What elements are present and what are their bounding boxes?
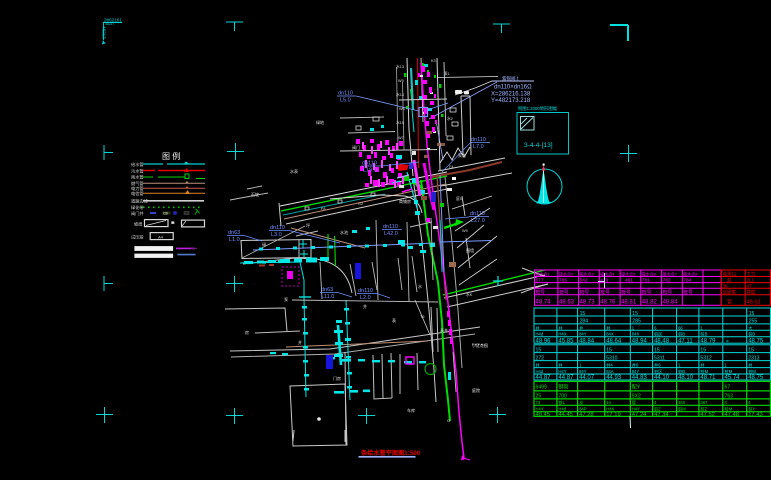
svg-text:桩区: 桩区: [654, 331, 662, 338]
svg-text:L3.0: L3.0: [271, 232, 282, 238]
svg-text:桩号: 桩号: [559, 289, 569, 296]
svg-text:井4: 井4: [606, 361, 613, 368]
svg-text:L1.0: L1.0: [229, 237, 240, 243]
svg-text:桩号: 桩号: [536, 289, 546, 296]
svg-text:桩B: 桩B: [678, 331, 685, 338]
svg-text:水: 水: [418, 283, 422, 289]
svg-text:47.34: 47.34: [654, 412, 669, 418]
svg-text:配Y: 配Y: [632, 385, 641, 391]
svg-text:L11.0: L11.0: [321, 294, 334, 300]
svg-text:48.63: 48.63: [559, 299, 575, 305]
svg-text:桩B: 桩B: [700, 331, 707, 338]
svg-text:3-4-4-[13]: 3-4-4-[13]: [524, 142, 553, 149]
svg-text:5312: 5312: [700, 356, 711, 362]
svg-text:dn110: dn110: [362, 161, 377, 167]
svg-text:管: 管: [632, 399, 636, 406]
svg-text:47.24: 47.24: [632, 412, 647, 418]
svg-text:≡: ≡: [726, 338, 729, 343]
svg-text:48.10: 48.10: [678, 375, 694, 381]
svg-text:763: 763: [725, 393, 734, 399]
svg-text:765: 765: [559, 278, 567, 284]
svg-text:Y=482173.218: Y=482173.218: [491, 98, 531, 104]
svg-text:84X: 84X: [632, 332, 640, 337]
svg-text:泵房: 泵房: [458, 152, 466, 158]
svg-text:47.28: 47.28: [579, 412, 594, 418]
svg-text:17.19: 17.19: [606, 412, 621, 418]
svg-text:367: 367: [700, 400, 708, 405]
svg-text:73: 73: [536, 400, 541, 405]
svg-text:井6: 井6: [654, 361, 661, 368]
svg-text:2L1: 2L1: [747, 278, 755, 283]
svg-text:17.43: 17.43: [748, 412, 763, 418]
svg-text:铁L: 铁L: [558, 399, 565, 406]
svg-text:H4d: H4d: [536, 369, 544, 374]
svg-text:15: 15: [749, 311, 755, 317]
svg-text:48.74: 48.74: [536, 299, 552, 305]
svg-text:庭5: 庭5: [456, 196, 462, 201]
svg-text:461: 461: [625, 278, 633, 284]
svg-text:48.64: 48.64: [606, 338, 622, 344]
svg-text:阀: 阀: [262, 241, 266, 247]
svg-text:44.87: 44.87: [558, 375, 574, 381]
svg-text:房: 房: [245, 329, 249, 335]
svg-text:小区花园: 小区花园: [472, 342, 488, 348]
svg-text:战绩家: 战绩家: [723, 289, 737, 296]
svg-text:542: 542: [580, 278, 588, 284]
svg-text:272: 272: [536, 356, 545, 362]
svg-text:48.75: 48.75: [748, 338, 764, 344]
svg-text:桩B: 桩B: [748, 331, 755, 338]
svg-text:水14: 水14: [396, 92, 404, 97]
svg-text:15: 15: [580, 311, 586, 317]
svg-text:CB: CB: [163, 212, 169, 216]
svg-text:84X: 84X: [606, 332, 614, 337]
svg-text:商铺房: 商铺房: [399, 198, 411, 204]
svg-text:桩M: 桩M: [678, 406, 686, 413]
svg-text:桩B: 桩B: [678, 368, 685, 375]
svg-text:782: 782: [663, 278, 671, 284]
svg-text:给水管: 给水管: [131, 161, 144, 168]
svg-text:管: 管: [727, 298, 732, 305]
svg-text:H4X: H4X: [606, 407, 614, 412]
svg-text:dn63: dn63: [228, 230, 240, 236]
svg-text:桩号: 桩号: [600, 289, 610, 296]
svg-text:784: 784: [683, 278, 691, 284]
svg-text:340: 340: [678, 400, 686, 405]
svg-text:14: 14: [606, 400, 611, 405]
svg-text:45.85: 45.85: [558, 338, 574, 344]
svg-text:W5: W5: [398, 79, 404, 83]
svg-text:井: 井: [700, 361, 704, 368]
svg-text:试压段: 试压段: [131, 234, 144, 241]
svg-text:表: 表: [392, 317, 396, 323]
svg-text:84P: 84P: [579, 407, 587, 412]
svg-text:接水点1: 接水点1: [536, 271, 551, 277]
svg-text:15: 15: [536, 348, 542, 354]
svg-text:接水点8: 接水点8: [683, 271, 698, 277]
svg-text:接水点5: 接水点5: [621, 271, 636, 277]
svg-text:284: 284: [580, 319, 589, 325]
svg-text:井: 井: [298, 339, 302, 345]
svg-text:2313: 2313: [748, 356, 759, 362]
svg-text:接水点4: 接水点4: [600, 271, 615, 277]
svg-text:X=286216.138: X=286216.138: [491, 92, 531, 98]
svg-text:285: 285: [632, 319, 641, 325]
svg-text:66: 66: [678, 325, 683, 330]
svg-text:丝: 丝: [579, 399, 583, 405]
svg-text:F8: F8: [321, 207, 325, 211]
svg-text:井: 井: [536, 361, 540, 368]
svg-text:48.62: 48.62: [747, 299, 761, 305]
svg-text:桩号: 桩号: [683, 289, 693, 296]
svg-text:dn110: dn110: [471, 137, 486, 143]
svg-text:36: 36: [723, 284, 729, 289]
svg-text:15: 15: [748, 348, 754, 354]
svg-text:W9: W9: [462, 229, 468, 233]
svg-text:H4Y: H4Y: [558, 369, 566, 374]
svg-text:石坡: 石坡: [251, 191, 259, 197]
svg-text:H4X: H4X: [558, 332, 566, 337]
svg-text:W6: W6: [399, 107, 405, 111]
svg-text:44.45: 44.45: [558, 412, 573, 418]
svg-text:dn110: dn110: [383, 224, 398, 230]
svg-text:L7.0: L7.0: [473, 144, 484, 150]
svg-text:水2: 水2: [447, 116, 453, 121]
svg-text:15: 15: [632, 311, 638, 317]
svg-text:577: 577: [536, 278, 544, 284]
svg-text:67: 67: [725, 385, 731, 391]
svg-text:48.75: 48.75: [748, 375, 764, 381]
svg-text:G: G: [447, 418, 450, 423]
svg-text:15: 15: [654, 348, 660, 354]
svg-text:水K: 水K: [466, 292, 473, 297]
svg-text:竣测12: 竣测12: [723, 271, 738, 278]
svg-text:桩区: 桩区: [654, 368, 662, 375]
svg-text:条给水管平面图1:500: 条给水管平面图1:500: [360, 449, 421, 457]
svg-text:围墙: 围墙: [466, 247, 474, 253]
svg-text:dn63: dn63: [321, 287, 333, 293]
svg-text:桩M: 桩M: [700, 368, 708, 375]
svg-text:桩号: 桩号: [621, 289, 631, 296]
svg-text:48.76: 48.76: [600, 299, 616, 305]
svg-text:表井: 表井: [440, 327, 448, 333]
svg-text:44.07: 44.07: [579, 375, 595, 381]
svg-text:H4Y: H4Y: [632, 407, 640, 412]
svg-text:5X2: 5X2: [632, 393, 641, 399]
svg-text:48.84: 48.84: [663, 299, 679, 305]
svg-text:庭院: 庭院: [472, 387, 480, 393]
svg-text:泵1: 泵1: [444, 71, 450, 76]
svg-text:附图1:2000地形图幅: 附图1:2000地形图幅: [518, 105, 558, 112]
svg-text:井: 井: [748, 361, 752, 368]
svg-text:接水点2: 接水点2: [559, 271, 574, 277]
svg-text:桩M: 桩M: [725, 368, 733, 375]
svg-text:A4: A4: [158, 234, 164, 239]
svg-text:L5.0: L5.0: [340, 98, 351, 104]
svg-text:接水点6: 接水点6: [642, 271, 657, 277]
svg-text:5311: 5311: [654, 356, 665, 362]
svg-text:48.79: 48.79: [700, 338, 716, 344]
svg-text:绿地: 绿地: [316, 119, 324, 125]
svg-text:水13: 水13: [396, 64, 404, 69]
svg-text:丁力: 丁力: [747, 271, 756, 278]
svg-text:水池: 水池: [340, 229, 348, 235]
svg-text:桩号: 桩号: [663, 289, 673, 296]
svg-text:泵: 泵: [284, 297, 288, 302]
svg-text:水表: 水表: [290, 168, 298, 174]
svg-text:48.45: 48.45: [536, 412, 551, 418]
svg-text:L19.0: L19.0: [363, 168, 377, 174]
svg-text:84Y: 84Y: [579, 369, 587, 374]
svg-text:48.48: 48.48: [654, 338, 670, 344]
svg-text:dn110×dn16Ω: dn110×dn16Ω: [494, 85, 532, 91]
svg-text:48213: 48213: [102, 26, 107, 39]
svg-text:井: 井: [558, 361, 562, 368]
svg-text:F4: F4: [449, 165, 453, 169]
svg-text:井: 井: [579, 324, 583, 331]
svg-text:钢管: 钢管: [558, 384, 568, 391]
svg-text:管底: 管底: [747, 289, 756, 296]
svg-text:L2.0: L2.0: [360, 295, 371, 301]
svg-text:绿化带: 绿化带: [131, 204, 144, 211]
svg-text:坪: 坪: [306, 222, 310, 228]
svg-text:44.83: 44.83: [632, 375, 648, 381]
svg-text:84Y: 84Y: [579, 332, 587, 337]
svg-text:84Y: 84Y: [632, 369, 640, 374]
svg-text:255: 255: [749, 319, 758, 325]
svg-text:47.11: 47.11: [678, 338, 693, 344]
svg-text:K3: K3: [431, 59, 436, 63]
svg-text:48.71: 48.71: [700, 375, 716, 381]
svg-text:大: 大: [748, 324, 752, 331]
svg-text:阀门井: 阀门井: [131, 210, 144, 217]
svg-text:44.10: 44.10: [654, 375, 670, 381]
svg-text:W7: W7: [398, 136, 404, 140]
svg-text:电信管: 电信管: [131, 190, 144, 197]
svg-text:雨水管: 雨水管: [131, 174, 144, 181]
svg-text:48.73: 48.73: [580, 299, 596, 305]
svg-text:井: 井: [363, 303, 367, 309]
svg-text:15: 15: [606, 348, 612, 354]
svg-text:水15: 水15: [396, 120, 404, 125]
svg-text:dn110: dn110: [358, 288, 373, 294]
svg-text:井: 井: [558, 324, 562, 331]
svg-text:dn110: dn110: [270, 225, 285, 231]
svg-text:5310: 5310: [606, 356, 617, 362]
svg-text:T6: T6: [420, 315, 424, 319]
svg-text:L27.0: L27.0: [471, 218, 485, 224]
svg-text:井6: 井6: [632, 361, 639, 368]
svg-text:dn110: dn110: [470, 211, 485, 217]
svg-text:阀门: 阀门: [352, 144, 360, 150]
svg-text:接水点3: 接水点3: [580, 271, 595, 277]
svg-text:G2: G2: [358, 202, 363, 206]
svg-text:封: 封: [727, 277, 732, 283]
svg-text:48.84: 48.84: [579, 338, 595, 344]
svg-text:6499: 6499: [536, 385, 547, 391]
svg-text:84A: 84A: [606, 369, 614, 374]
svg-text:45.74: 45.74: [725, 375, 741, 381]
svg-text:污水管: 污水管: [131, 168, 144, 175]
svg-text:15: 15: [700, 348, 706, 354]
svg-text:车库: 车库: [407, 407, 415, 413]
svg-text:48.81: 48.81: [621, 299, 637, 305]
svg-text:桩号: 桩号: [642, 289, 652, 296]
svg-text:井: 井: [606, 324, 610, 331]
svg-text:4T: 4T: [747, 284, 753, 289]
svg-text:接水点7: 接水点7: [663, 271, 678, 277]
svg-text:桩号: 桩号: [580, 289, 590, 296]
svg-text:48.96: 48.96: [536, 338, 552, 344]
svg-text:44.93: 44.93: [606, 375, 622, 381]
svg-text:25: 25: [536, 393, 542, 399]
svg-text:图 例: 图 例: [162, 151, 180, 161]
svg-text:坡度: 坡度: [134, 221, 143, 228]
svg-text:781: 781: [642, 278, 650, 284]
svg-text:H4Y: H4Y: [536, 407, 544, 412]
svg-text:H4d: H4d: [558, 407, 566, 412]
svg-text:44.87: 44.87: [536, 375, 552, 381]
svg-text:47.52: 47.52: [700, 412, 715, 418]
svg-text:桩M: 桩M: [748, 368, 756, 375]
svg-text:47.48: 47.48: [725, 412, 740, 418]
svg-text:48.94: 48.94: [632, 338, 648, 344]
svg-text:H4d: H4d: [536, 332, 544, 337]
svg-text:48.82: 48.82: [642, 299, 658, 305]
svg-text:门房: 门房: [333, 375, 341, 381]
svg-text:L42.0: L42.0: [384, 231, 398, 237]
svg-text:井: 井: [536, 324, 540, 331]
svg-text:700: 700: [558, 393, 567, 399]
